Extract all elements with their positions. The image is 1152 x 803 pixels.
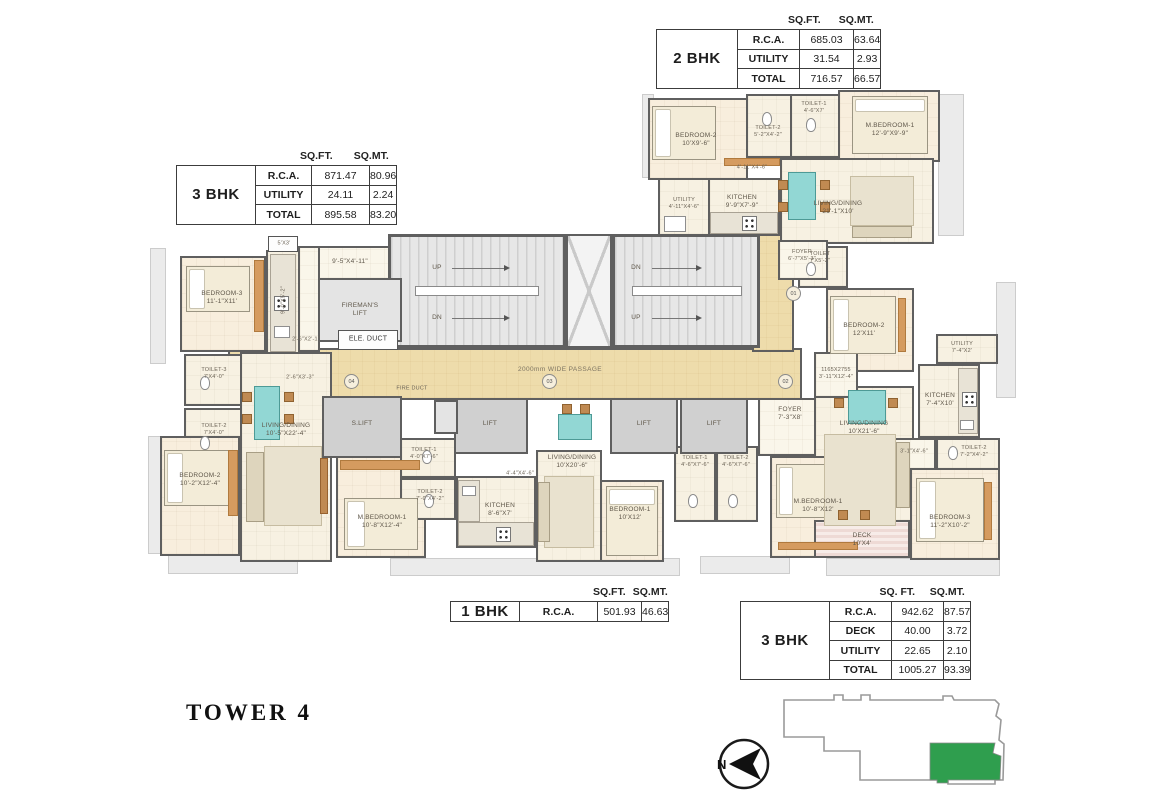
label-toilet-2: TOILET-2 5'-2"X4'-2" (754, 125, 782, 139)
label-toilet-2: TOILET-2 7'-0"X4'-2" (416, 489, 444, 503)
row-sqft: 895.58 (312, 205, 370, 224)
stove-burner (496, 527, 511, 542)
floor-plan-page: 9'-5"X4'-11" FIREMAN'S LIFT ELE. DUCT UP… (0, 0, 1152, 803)
row-sqmt: 66.57 (854, 69, 880, 88)
unit-number-01: 01 (786, 286, 801, 301)
label-toilet-2: TOILET-2 7'X4'-0" (201, 423, 226, 437)
stair-direction-line (652, 318, 696, 319)
table-header: SQ. FT. SQ.MT. (740, 586, 971, 598)
label-bedroom-3: BEDROOM-3 11'-1"X11' (201, 290, 242, 306)
dining-table (558, 414, 592, 440)
row-label: UTILITY (256, 186, 312, 205)
bhk-name: 1 BHK (451, 602, 520, 621)
label-pass-dims: 2'-6"X2'-1" (292, 337, 320, 344)
balcony (826, 558, 1000, 576)
label-living: LIVING/DINING 10'-5"X22'-4" (262, 422, 310, 438)
elevator-shaft (566, 234, 612, 348)
label-toilet-small: TOILET-2 7'-2"X4'-2" (960, 445, 988, 459)
chair (888, 398, 898, 408)
row-sqmt: 2.24 (370, 186, 396, 205)
toilet-fixture (948, 446, 958, 460)
unit-number-03: 03 (542, 374, 557, 389)
area-table-3bhk-right: SQ. FT. SQ.MT. 3 BHK R.C.A. 942.62 87.57… (740, 586, 971, 680)
label-kitchen: KITCHEN 8'-6"X7' (485, 502, 515, 518)
label-bedroom-3: BEDROOM-3 11'-2"X10'-2" (929, 514, 970, 530)
table-body: 3 BHK R.C.A. 942.62 87.57 DECK 40.00 3.7… (740, 601, 971, 680)
chair (242, 392, 252, 402)
row-label: DECK (830, 622, 892, 641)
label-ele-duct: ELE. DUCT (349, 336, 387, 345)
bed (916, 478, 984, 542)
table-row: TOTAL 1005.27 93.39 (830, 660, 970, 680)
label-duct: 5'X3' (278, 241, 291, 248)
chair (284, 392, 294, 402)
label-pass-dims: 2'-6"X3'-3" (286, 375, 314, 382)
row-sqmt: 80.96 (370, 166, 396, 185)
wardrobe (984, 482, 992, 540)
label-toilet-3: TOILET-3 7'X4'-0" (201, 367, 226, 381)
chair (778, 180, 788, 190)
up-arrow-icon (504, 265, 513, 271)
wardrobe (254, 260, 264, 332)
table-body: 3 BHK R.C.A. 871.47 80.96 UTILITY 24.11 … (176, 165, 397, 225)
chair (834, 398, 844, 408)
label-bedroom-2: BEDROOM-2 10'-2"X12'-4" (179, 472, 220, 488)
wardrobe (898, 298, 906, 352)
row-sqft: 24.11 (312, 186, 370, 205)
utility-sink (664, 216, 686, 232)
col-sqft: SQ.FT. (287, 150, 345, 162)
key-plan (712, 690, 1022, 800)
unit-number-text: 04 (348, 379, 354, 385)
table-header: SQ.FT. SQ.MT. (176, 150, 397, 162)
row-label: UTILITY (738, 50, 800, 69)
row-label: TOTAL (738, 69, 800, 88)
table-body: 1 BHK R.C.A. 501.93 46.63 (450, 601, 669, 622)
label-dn: DN (432, 314, 442, 322)
unit-number-04: 04 (344, 374, 359, 389)
label-living: LIVING/DINING 21'-1"X10' (814, 200, 862, 216)
label-hall-dims: 4'-11"X4'-6" (737, 165, 768, 172)
row-sqft: 716.57 (800, 69, 854, 88)
row-label: R.C.A. (520, 602, 598, 621)
row-sqft: 22.65 (892, 641, 944, 660)
label-foyer: FOYER 6'-7"X5'-3" (788, 249, 816, 263)
chair (580, 404, 590, 414)
area-table-3bhk-left: SQ.FT. SQ.MT. 3 BHK R.C.A. 871.47 80.96 … (176, 150, 397, 225)
row-sqmt: 46.63 (642, 602, 668, 621)
bhk-name: 3 BHK (741, 602, 830, 679)
table-row: R.C.A. 501.93 46.63 (520, 602, 668, 621)
label-living: LIVING/DINING 10'X20'-6" (548, 454, 596, 470)
row-label: R.C.A. (830, 602, 892, 621)
label-kitchen: KITCHEN 7'-4"X10' (925, 392, 955, 408)
label-s-lift: S.LIFT (352, 420, 373, 428)
label-mbedroom: M.BEDROOM-1 10'-8"X12' (794, 498, 843, 514)
toilet-fixture (728, 494, 738, 508)
tv-unit (320, 458, 328, 514)
label-lift: LIFT (707, 420, 721, 428)
balcony (996, 282, 1016, 398)
col-sqmt: SQ.MT. (631, 586, 669, 598)
balcony (700, 556, 790, 574)
table-row: UTILITY 31.54 2.93 (738, 49, 880, 69)
stove-burner (962, 392, 977, 407)
label-toilet-2: TOILET-2 4'-6"X7'-6" (722, 455, 750, 469)
row-sqmt: 83.20 (370, 205, 396, 224)
col-sqft: SQ.FT. (587, 586, 631, 598)
stair-rail (632, 286, 742, 296)
label-mbedroom: M.BEDROOM-1 10'-8"X12'-4" (358, 514, 407, 530)
table-row: R.C.A. 685.03 63.64 (738, 30, 880, 49)
wardrobe (228, 450, 238, 516)
label-passage: 2000mm WIDE PASSAGE (518, 366, 602, 374)
row-label: R.C.A. (256, 166, 312, 185)
fire-duct-shaft (434, 400, 458, 434)
table-header: SQ.FT. SQ.MT. (450, 586, 669, 598)
label-toilet-1: TOILET-1 4'-6"X7' (801, 101, 826, 115)
col-sqmt: SQ.MT. (345, 150, 397, 162)
row-sqft: 1005.27 (892, 661, 944, 680)
chair (562, 404, 572, 414)
balcony (938, 94, 964, 236)
row-label: TOTAL (256, 205, 312, 224)
table-row: UTILITY 24.11 2.24 (256, 185, 396, 205)
row-label: R.C.A. (738, 30, 800, 49)
toilet-fixture (200, 436, 210, 450)
label-kitchen-dims: 9'-0"X5'-2" (281, 286, 288, 314)
sofa (852, 226, 912, 238)
table-row: R.C.A. 871.47 80.96 (256, 166, 396, 185)
label-up: UP (631, 314, 640, 322)
area-table-1bhk: SQ.FT. SQ.MT. 1 BHK R.C.A. 501.93 46.63 (450, 586, 669, 622)
table-row: R.C.A. 942.62 87.57 (830, 602, 970, 621)
dining-table (788, 172, 816, 220)
row-sqmt: 2.10 (944, 641, 970, 660)
row-sqft: 685.03 (800, 30, 854, 49)
chair (860, 510, 870, 520)
row-sqft: 942.62 (892, 602, 944, 621)
table-row: TOTAL 895.58 83.20 (256, 204, 396, 224)
label-stair-dims: 9'-5"X4'-11" (332, 258, 368, 266)
bhk-name: 2 BHK (657, 30, 738, 88)
unit-number-text: 02 (782, 379, 788, 385)
kitchen-sink (274, 326, 290, 338)
table-row: UTILITY 22.65 2.10 (830, 640, 970, 660)
label-foyer-dims: 4'-4"X4'-6" (506, 471, 534, 478)
wardrobe (778, 542, 858, 550)
chair (778, 202, 788, 212)
wardrobe (340, 460, 420, 470)
row-sqft: 501.93 (598, 602, 642, 621)
col-sqmt: SQ.MT. (923, 586, 971, 598)
table-body: 2 BHK R.C.A. 685.03 63.64 UTILITY 31.54 … (656, 29, 881, 89)
up-arrow-icon (696, 315, 705, 321)
label-bedroom-2: BEDROOM-2 12'X11' (843, 322, 884, 338)
label-up: UP (432, 264, 441, 272)
stair-direction-line (452, 268, 504, 269)
balcony (150, 248, 166, 364)
unit-number-02: 02 (778, 374, 793, 389)
col-sqft: SQ. FT. (871, 586, 923, 598)
label-lift: LIFT (637, 420, 651, 428)
label-bedroom-1: BEDROOM-1 10'X12' (609, 506, 650, 522)
table-row: TOTAL 716.57 66.57 (738, 68, 880, 88)
row-label: UTILITY (830, 641, 892, 660)
unit-number-text: 03 (546, 379, 552, 385)
row-label: TOTAL (830, 661, 892, 680)
row-sqmt: 87.57 (944, 602, 970, 621)
rug (544, 476, 594, 548)
col-sqmt: SQ.MT. (831, 14, 881, 26)
label-niche-dims: 1165X2755 3'-11"X12'-4" (819, 367, 853, 381)
label-lift: LIFT (483, 420, 497, 428)
label-foyer: FOYER 7'-3"X8' (778, 406, 802, 422)
key-plan-highlight-tower4 (930, 743, 1001, 783)
area-table-2bhk: SQ.FT. SQ.MT. 2 BHK R.C.A. 685.03 63.64 … (656, 14, 881, 89)
label-toilet-1: TOILET-1 4'-0"X7'-6" (410, 447, 438, 461)
page-title: TOWER 4 (186, 700, 312, 726)
label-bedroom-2: BEDROOM-2 10'X9'-6" (675, 132, 716, 148)
down-arrow-icon (696, 265, 705, 271)
label-fireman-lift: FIREMAN'S LIFT (342, 302, 379, 318)
stair-direction-line (652, 268, 696, 269)
chair (820, 180, 830, 190)
row-sqmt: 3.72 (944, 622, 970, 641)
down-arrow-icon (504, 315, 513, 321)
label-utility: UTILITY 4'-11"X4'-6" (669, 197, 700, 211)
label-dn: DN (631, 264, 641, 272)
row-sqmt: 2.93 (854, 50, 880, 69)
row-sqft: 31.54 (800, 50, 854, 69)
label-kitchen: KITCHEN 9'-9"X7'-9" (726, 194, 758, 210)
sofa (538, 482, 550, 542)
row-sqft: 871.47 (312, 166, 370, 185)
table-row: DECK 40.00 3.72 (830, 621, 970, 641)
table-header: SQ.FT. SQ.MT. (656, 14, 881, 26)
label-utility: UTILITY 7'-4"X2' (951, 341, 973, 355)
unit-number-text: 01 (790, 291, 796, 297)
toilet-fixture (806, 118, 816, 132)
label-toilet-1: TOILET-1 4'-6"X7'-6" (681, 455, 709, 469)
kitchen-sink (462, 486, 476, 496)
row-sqmt: 63.64 (854, 30, 880, 49)
sofa (246, 452, 264, 522)
bhk-name: 3 BHK (177, 166, 256, 224)
stair-rail (415, 286, 539, 296)
row-sqft: 40.00 (892, 622, 944, 641)
rug (264, 446, 322, 526)
row-sqmt: 93.39 (944, 661, 970, 680)
label-pass-dims: 3'-1"X4'-6" (900, 449, 928, 456)
kitchen-sink (960, 420, 974, 430)
label-mbedroom: M.BEDROOM-1 12'-9"X9'-9" (866, 122, 915, 138)
stove-burner (742, 216, 757, 231)
label-living: LIVING/DINING 10'X21'-6" (840, 420, 888, 436)
chair (242, 414, 252, 424)
toilet-fixture (762, 112, 772, 126)
label-fire-duct: FIRE DUCT (396, 386, 427, 393)
stair-direction-line (452, 318, 504, 319)
col-sqft: SQ.FT. (777, 14, 831, 26)
label-deck: DECK 10'X4' (853, 532, 872, 548)
toilet-fixture (688, 494, 698, 508)
